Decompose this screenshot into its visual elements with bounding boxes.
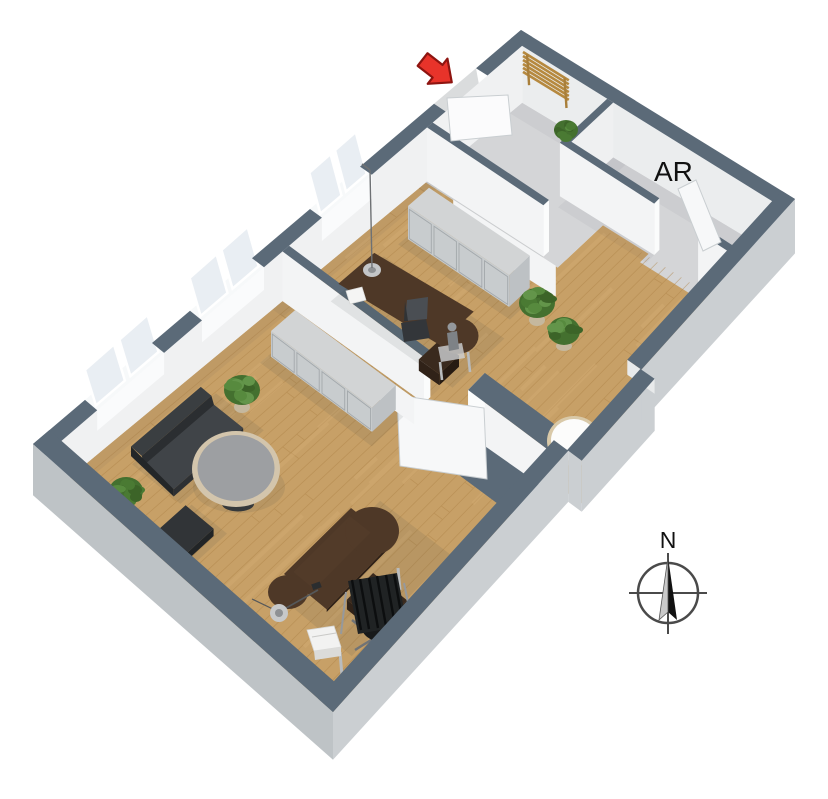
svg-text:N: N	[660, 527, 677, 553]
svg-text:AR: AR	[654, 156, 693, 187]
